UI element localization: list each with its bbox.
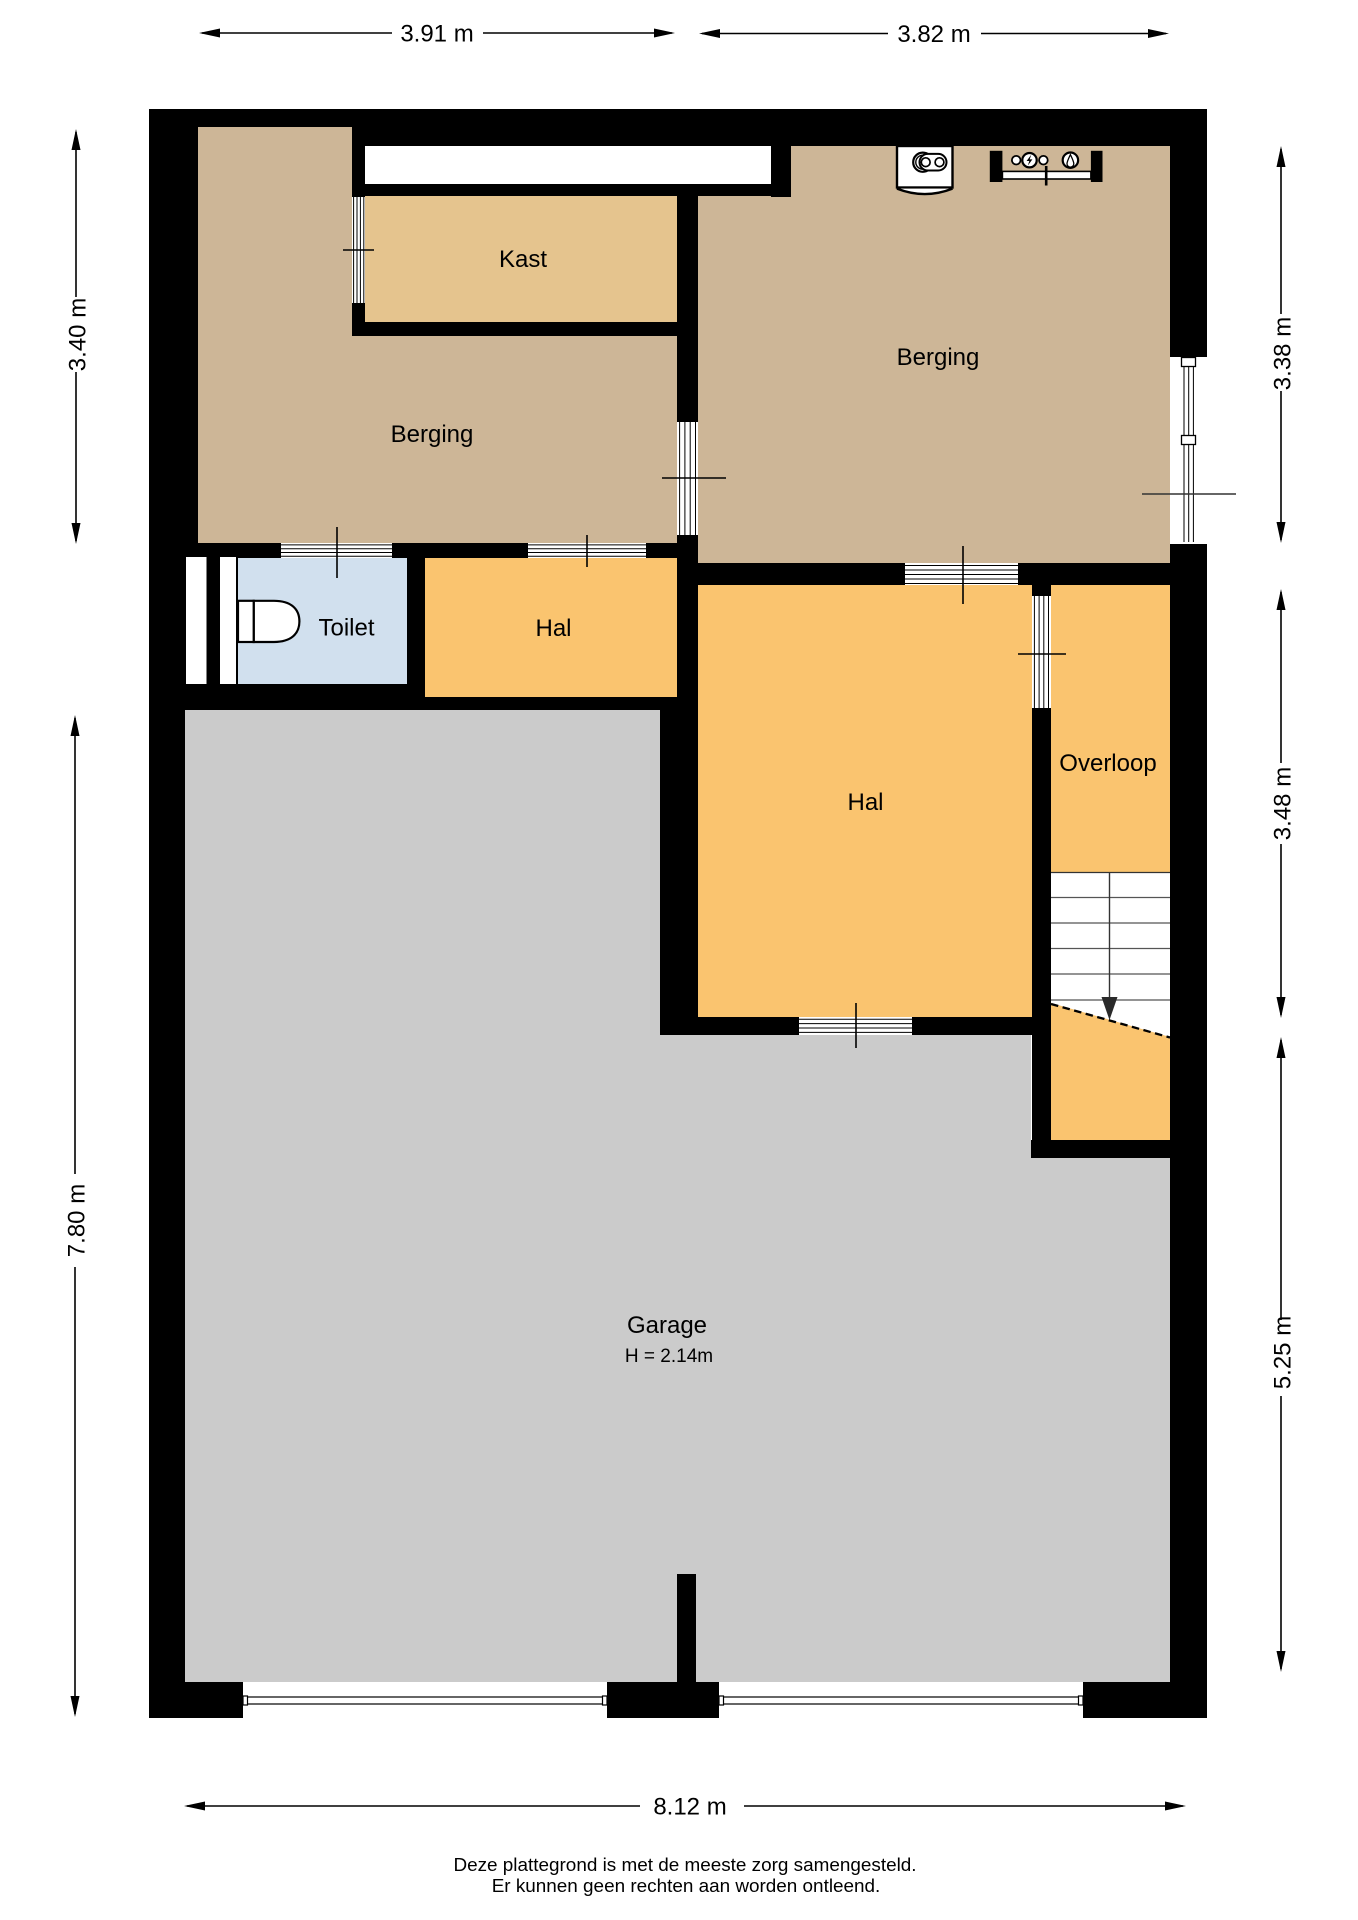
svg-text:Garage: Garage (627, 1312, 707, 1339)
svg-text:Er kunnen geen rechten aan wor: Er kunnen geen rechten aan worden ontlee… (492, 1876, 881, 1897)
svg-text:7.80 m: 7.80 m (64, 1184, 91, 1257)
svg-text:Berging: Berging (391, 421, 474, 448)
svg-text:3.82 m: 3.82 m (897, 21, 970, 48)
svg-text:3.38 m: 3.38 m (1270, 317, 1297, 390)
svg-text:H = 2.14m: H = 2.14m (625, 1346, 713, 1367)
svg-text:3.48 m: 3.48 m (1270, 767, 1297, 840)
svg-text:Hal: Hal (535, 615, 571, 642)
svg-text:Kast: Kast (499, 246, 547, 273)
svg-text:Overloop: Overloop (1059, 750, 1156, 777)
svg-text:5.25 m: 5.25 m (1270, 1316, 1297, 1389)
svg-text:Toilet: Toilet (318, 615, 374, 642)
svg-text:Deze plattegrond is met de mee: Deze plattegrond is met de meeste zorg s… (453, 1855, 916, 1876)
svg-text:Hal: Hal (847, 789, 883, 816)
svg-text:3.40 m: 3.40 m (65, 298, 92, 371)
svg-text:8.12 m: 8.12 m (653, 1794, 726, 1821)
svg-text:Berging: Berging (897, 344, 980, 371)
svg-text:3.91 m: 3.91 m (400, 21, 473, 48)
